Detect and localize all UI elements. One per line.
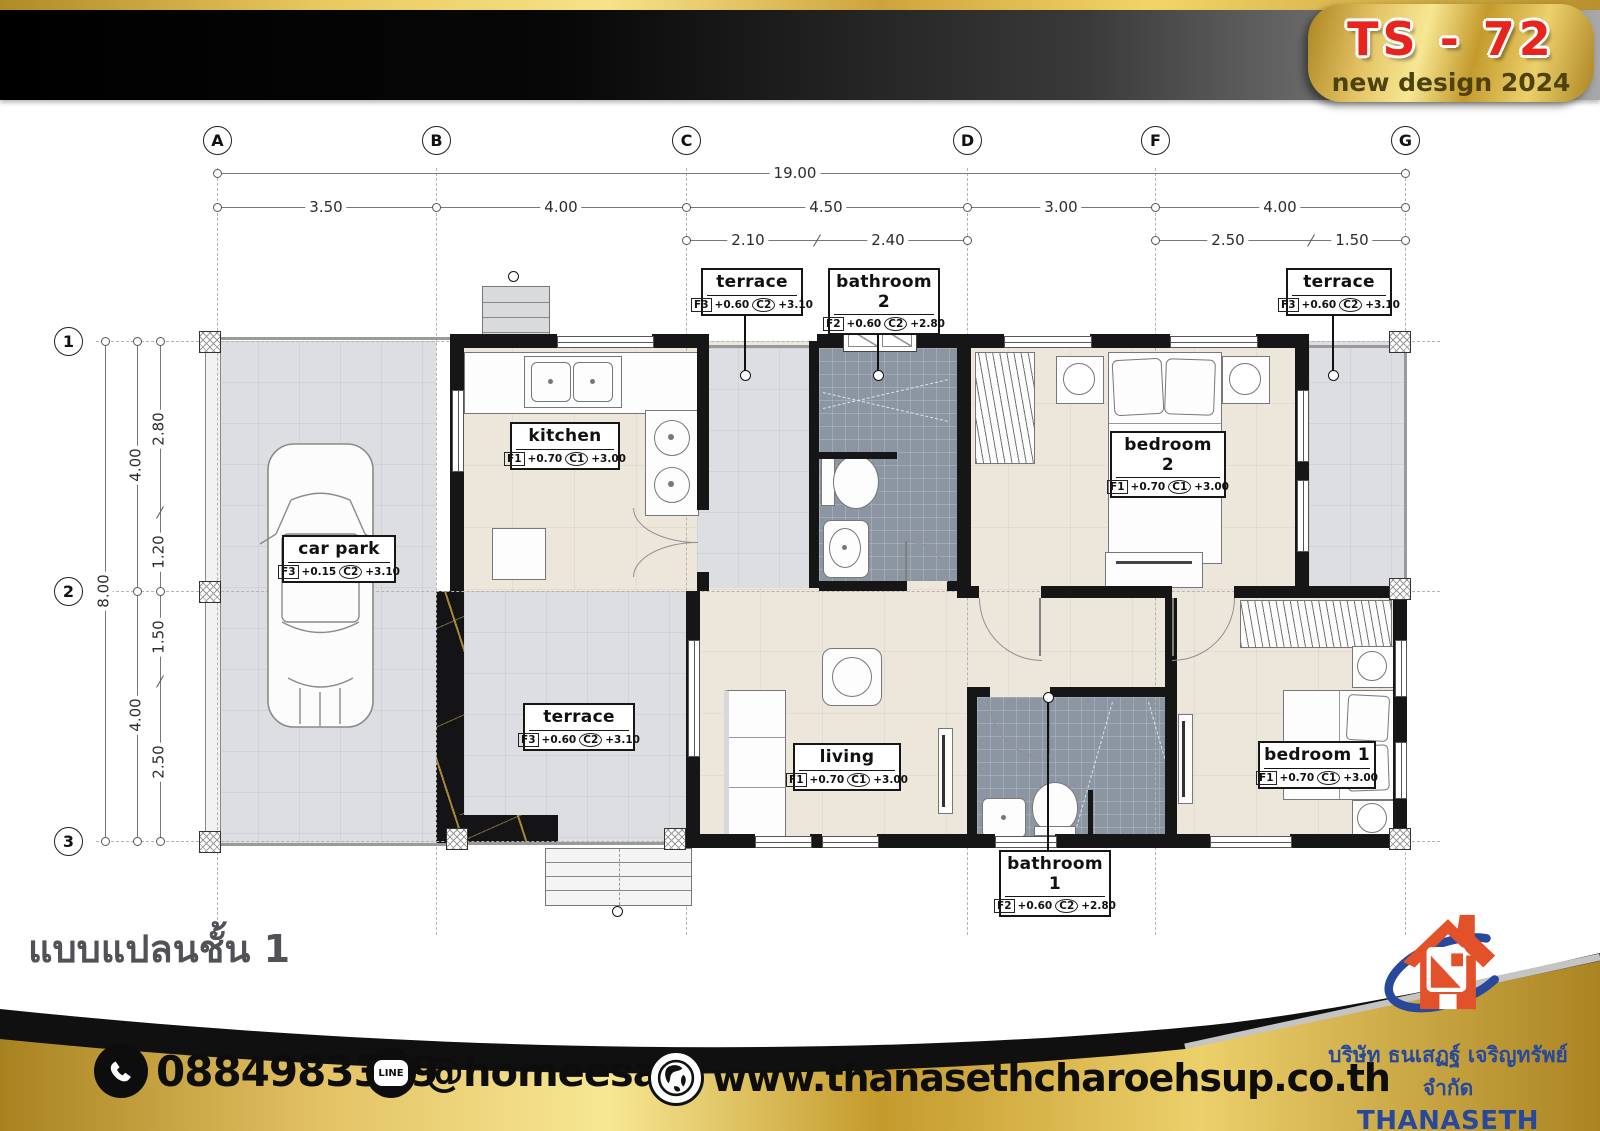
sheet: TS - 72 new design 2024: [0, 0, 1600, 1131]
room-label-bedroom-1: bedroom 1 F1+0.70C1+3.00: [1258, 741, 1376, 789]
kitchen-sink: [524, 356, 622, 408]
wall: [450, 334, 557, 348]
wall: [809, 341, 819, 588]
toilet-bathroom-1: [1032, 782, 1078, 832]
window: [1297, 390, 1309, 462]
stair-knob: [508, 271, 519, 282]
wall: [971, 334, 1004, 348]
dim-vsub: 2.80: [150, 409, 168, 448]
dresser-bedroom-2: [1105, 552, 1203, 588]
room-label-terrace-right: terrace F3+0.60C2+3.10: [1286, 268, 1392, 316]
dim-total: 19.00: [770, 164, 821, 182]
dim-vseg: 4.00: [127, 695, 145, 734]
slab-edge: [205, 843, 450, 846]
globe-icon: [648, 1050, 704, 1106]
leader-line: [744, 310, 746, 374]
kitchen-cabinet: [492, 528, 546, 580]
kitchen-stove: [645, 410, 699, 516]
tv-cabinet-bedroom-1: [1178, 714, 1193, 804]
sink-bathroom-1: [982, 798, 1026, 838]
wall: [1295, 334, 1309, 598]
wardrobe-bedroom-1: [1240, 600, 1392, 648]
column: [1389, 331, 1411, 353]
wall: [1234, 586, 1405, 598]
dim-seg: 3.50: [305, 198, 346, 216]
terrace-edge: [709, 345, 819, 348]
terrace-edge: [1404, 341, 1407, 591]
dim-sub: 2.40: [867, 231, 908, 249]
stair-main-entry: [545, 848, 692, 906]
window: [755, 836, 812, 848]
wall: [652, 334, 709, 348]
company-name-thai: บริษัท ธนเสฏฐ์ เจริญทรัพย์ จำกัด: [1302, 1039, 1594, 1105]
contact-website[interactable]: www.thanasethcharoehsup.co.th: [648, 1050, 1390, 1106]
dim-sub: 2.10: [727, 231, 768, 249]
grid-col-label: D: [953, 126, 982, 155]
dim-vseg: 4.00: [127, 445, 145, 484]
wall: [697, 348, 709, 510]
floor-terrace-entry: [697, 348, 817, 588]
grid-col-label: B: [422, 126, 451, 155]
line-id: @homeesan: [424, 1050, 686, 1096]
lamp-icon: [1229, 363, 1261, 395]
dim-seg: 4.00: [540, 198, 581, 216]
dim-sub: 1.50: [1331, 231, 1372, 249]
grid-row-label: 1: [54, 327, 83, 356]
marble-wall-vertical: [436, 591, 464, 845]
grid-col-label: A: [203, 126, 232, 155]
column: [446, 828, 468, 850]
window: [1297, 480, 1309, 552]
leader-dot: [873, 370, 884, 381]
wall: [819, 452, 897, 459]
room-label-bedroom-2: bedroom 2 F1+0.70C1+3.00: [1110, 431, 1226, 498]
wall: [1041, 586, 1172, 598]
dim-seg: 4.50: [805, 198, 846, 216]
wall: [1050, 687, 1175, 697]
website-url: www.thanasethcharoehsup.co.th: [712, 1056, 1390, 1100]
toilet-bowl-bathroom-2: [833, 455, 879, 509]
grid-row-label: 2: [54, 577, 83, 606]
contact-line[interactable]: LINE @homeesan: [366, 1048, 686, 1098]
wall: [1090, 334, 1170, 348]
window: [688, 640, 700, 757]
line-icon: LINE: [366, 1048, 416, 1098]
dim-vsub: 1.20: [150, 532, 168, 571]
room-label-kitchen: kitchen F1+0.70C1+3.00: [510, 422, 620, 470]
window: [452, 390, 464, 472]
grid-col-label: C: [672, 126, 701, 155]
leader-line: [1047, 700, 1049, 852]
window: [557, 336, 654, 348]
window: [1395, 742, 1407, 799]
dim-vtotal: 8.00: [95, 571, 113, 610]
dim-sub: 2.50: [1207, 231, 1248, 249]
company-name-english: THANASETH CHAROENSUP: [1302, 1106, 1594, 1131]
wall: [947, 581, 957, 591]
dim-vsub: 1.50: [150, 617, 168, 656]
room-label-bathroom-1: bathroom 1 F2+0.60C2+2.80: [999, 850, 1111, 917]
wall: [957, 334, 971, 598]
car-icon: [258, 438, 383, 733]
grid-col-label: F: [1141, 126, 1170, 155]
wall: [686, 834, 755, 848]
wall: [1393, 586, 1407, 848]
leader-dot: [1043, 692, 1054, 703]
slab-edge: [205, 337, 450, 340]
wall: [967, 687, 990, 697]
wall: [971, 586, 979, 598]
room-label-car-park: car park F3+0.15C2+3.10: [282, 535, 396, 583]
column: [199, 331, 221, 353]
armchair: [822, 648, 882, 706]
lamp-icon: [1357, 803, 1387, 833]
column: [1389, 828, 1411, 850]
room-label-terrace-lower: terrace F3+0.60C2+3.10: [523, 703, 635, 751]
leader-dot: [1328, 370, 1339, 381]
dim-seg: 4.00: [1259, 198, 1300, 216]
lamp-icon: [1063, 363, 1095, 395]
window: [1210, 836, 1292, 848]
room-label-bathroom-2: bathroom 2 F2+0.60C2+2.80: [828, 268, 940, 335]
window: [1004, 336, 1092, 348]
grid-row-label: 3: [54, 827, 83, 856]
sofa: [724, 690, 786, 842]
model-subtitle: new design 2024: [1308, 68, 1594, 97]
column: [664, 828, 686, 850]
leader-line: [1332, 310, 1334, 374]
stair-center-mark: [612, 906, 623, 917]
wall: [967, 697, 977, 841]
house-logo-icon: [1373, 902, 1523, 1037]
window: [1395, 640, 1407, 697]
window: [822, 836, 879, 848]
lamp-icon: [1357, 651, 1387, 681]
grid-line-A: [217, 168, 218, 935]
sink-bathroom-2: [823, 520, 869, 578]
column: [1389, 578, 1411, 600]
wall: [877, 834, 995, 848]
door-leaf: [1039, 598, 1041, 656]
tv-cabinet-living: [938, 728, 953, 814]
model-badge: TS - 72 new design 2024: [1308, 4, 1594, 102]
wardrobe-bedroom-2: [975, 352, 1035, 464]
grid-line-B: [436, 168, 437, 935]
wall: [819, 581, 907, 591]
window: [1170, 336, 1258, 348]
company-logo: บริษัท ธนเสฏฐ์ เจริญทรัพย์ จำกัด THANASE…: [1302, 902, 1594, 1127]
phone-icon: [94, 1044, 148, 1098]
column: [199, 831, 221, 853]
terrace-edge: [464, 842, 686, 845]
model-code: TS - 72: [1308, 12, 1594, 66]
leader-dot: [740, 370, 751, 381]
room-label-living: living F1+0.70C1+3.00: [793, 743, 901, 791]
shower-divider: [1088, 790, 1093, 838]
floor-terrace-right: [1309, 341, 1407, 591]
wall: [697, 572, 709, 591]
door-leaf: [1172, 598, 1174, 656]
dim-seg: 3.00: [1040, 198, 1081, 216]
dim-vsub: 2.50: [150, 742, 168, 781]
grid-col-label: G: [1391, 126, 1420, 155]
door-leaf: [905, 541, 907, 581]
room-label-terrace-entry: terrace F3+0.60C2+3.10: [701, 268, 803, 316]
wall: [1055, 834, 1210, 848]
column: [199, 581, 221, 603]
